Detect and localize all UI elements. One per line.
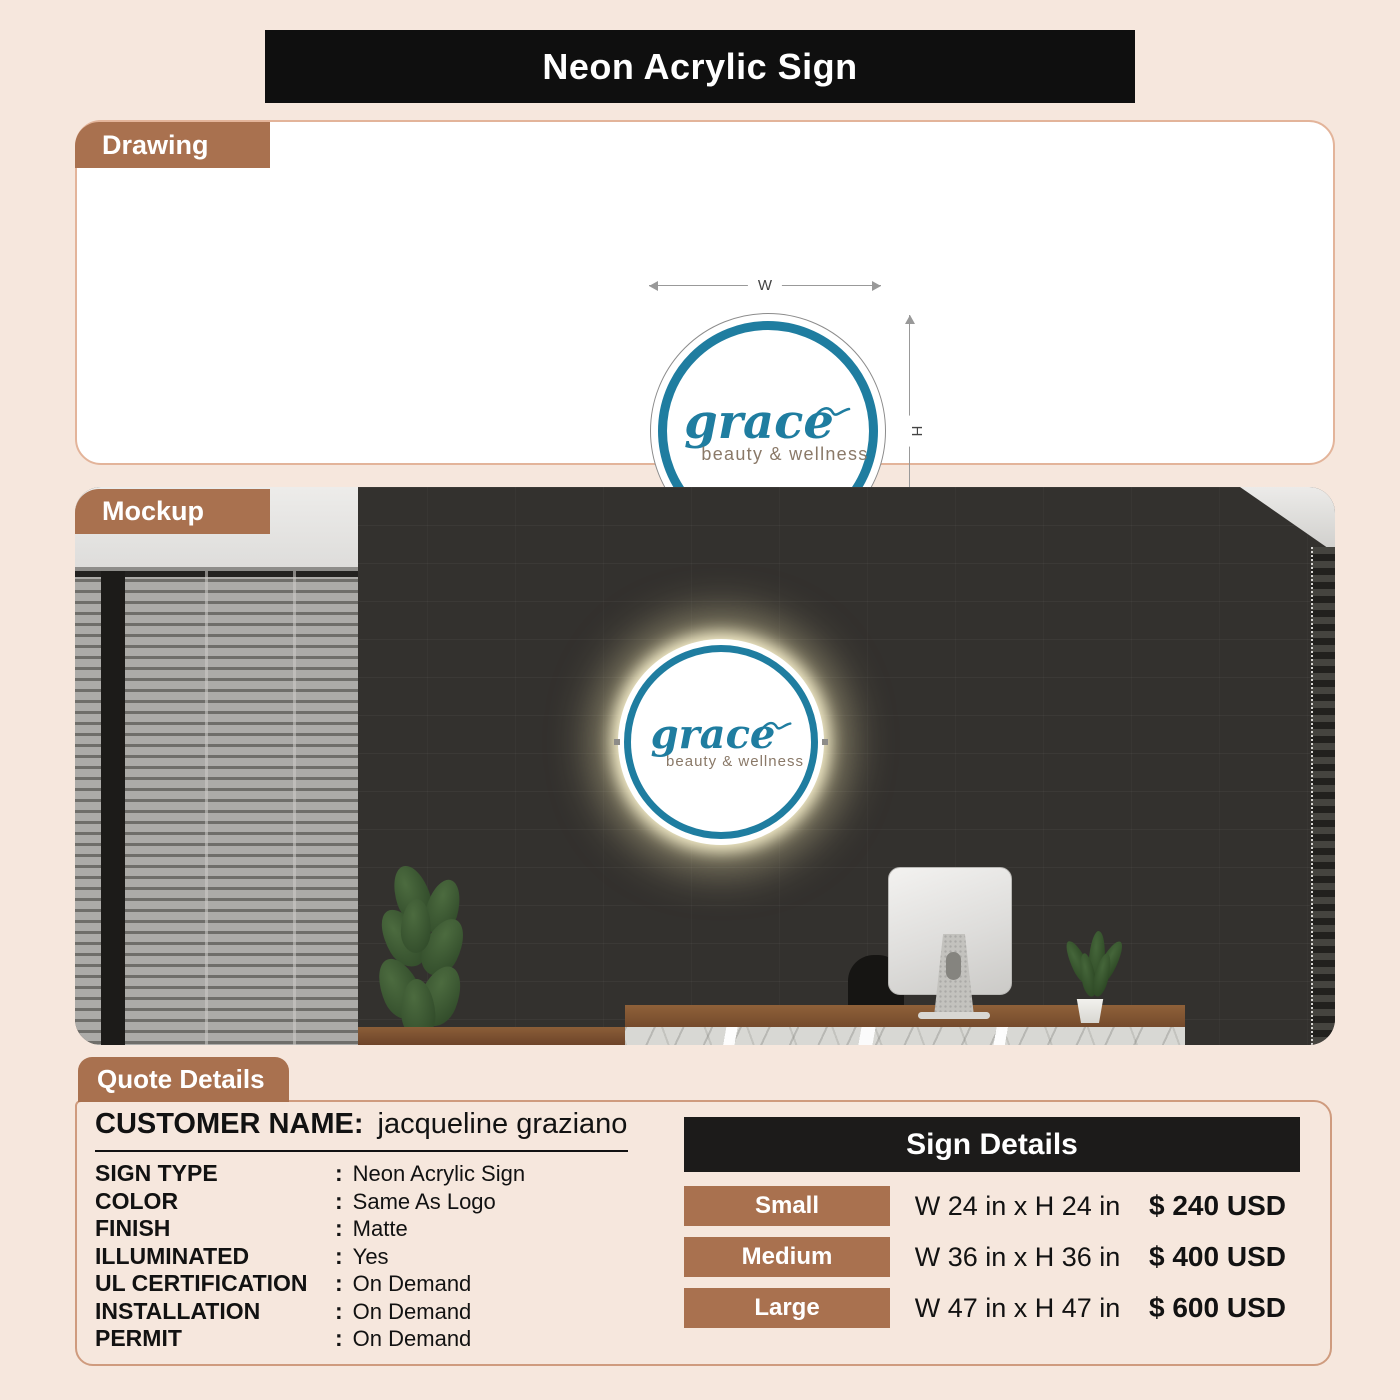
medium-price: $ 400 USD <box>1145 1241 1300 1273</box>
sign-details-rows: Small W 24 in x H 24 in $ 240 USD Medium… <box>684 1186 1300 1339</box>
field-value: Yes <box>353 1244 389 1270</box>
quote-field-row: INSTALLATION : On Demand <box>95 1298 640 1325</box>
large-size-button[interactable]: Large <box>684 1288 890 1328</box>
field-label: COLOR <box>95 1188 335 1215</box>
arrowhead-right-icon <box>872 281 881 291</box>
blind-cord <box>293 571 296 1045</box>
ceiling-corner <box>1240 487 1335 553</box>
width-dimension-label: W <box>748 277 782 294</box>
customer-name-value: jacqueline graziano <box>378 1108 628 1141</box>
quote-field-row: COLOR : Same As Logo <box>95 1188 640 1215</box>
field-separator: : <box>335 1243 343 1270</box>
large-price: $ 600 USD <box>1145 1292 1300 1324</box>
size-row-small: Small W 24 in x H 24 in $ 240 USD <box>684 1186 1300 1226</box>
arrowhead-left-icon <box>649 281 658 291</box>
customer-row: CUSTOMER NAME: jacqueline graziano <box>95 1108 627 1141</box>
tab-quote-details[interactable]: Quote Details <box>78 1057 289 1102</box>
medium-size-button[interactable]: Medium <box>684 1237 890 1277</box>
quote-fields: SIGN TYPE : Neon Acrylic Sign COLOR : Sa… <box>95 1160 640 1352</box>
sign-mount <box>822 739 828 745</box>
quote-field-row: PERMIT : On Demand <box>95 1325 640 1352</box>
customer-name-label: CUSTOMER NAME: <box>95 1108 364 1141</box>
field-separator: : <box>335 1188 343 1215</box>
logo-subtitle: beauty & wellness <box>701 444 868 465</box>
field-value: Matte <box>353 1216 408 1242</box>
size-row-large: Large W 47 in x H 47 in $ 600 USD <box>684 1288 1300 1328</box>
sign-mount <box>614 739 620 745</box>
field-separator: : <box>335 1325 343 1352</box>
quote-field-row: SIGN TYPE : Neon Acrylic Sign <box>95 1160 640 1187</box>
field-label: FINISH <box>95 1215 335 1242</box>
width-arrow-icon: W <box>649 278 881 294</box>
mockup-panel: grace beauty & wellness <box>75 487 1335 1045</box>
field-separator: : <box>335 1298 343 1325</box>
arrowhead-up-icon <box>905 315 915 324</box>
blind-cord <box>205 571 208 1045</box>
window-frame <box>101 571 125 1045</box>
quote-sheet: Neon Acrylic Sign W H grace beauty & wel… <box>0 0 1400 1400</box>
quote-field-row: UL CERTIFICATION : On Demand <box>95 1270 640 1297</box>
tab-mockup[interactable]: Mockup <box>75 489 270 534</box>
large-dimensions: W 47 in x H 47 in <box>890 1293 1145 1324</box>
swoosh-icon <box>758 717 792 737</box>
sign-subtitle: beauty & wellness <box>666 753 804 770</box>
tab-drawing[interactable]: Drawing <box>75 122 270 168</box>
quote-field-row: ILLUMINATED : Yes <box>95 1243 640 1270</box>
drawing-panel: W H grace beauty & wellness <box>75 120 1335 465</box>
customer-underline <box>95 1150 628 1152</box>
small-price: $ 240 USD <box>1145 1190 1300 1222</box>
field-separator: : <box>335 1215 343 1242</box>
medium-dimensions: W 36 in x H 36 in <box>890 1242 1145 1273</box>
field-label: UL CERTIFICATION <box>95 1270 335 1297</box>
desk-marble-front <box>625 1027 1185 1045</box>
quote-field-row: FINISH : Matte <box>95 1215 640 1242</box>
height-dimension-label: H <box>908 416 925 447</box>
field-label: ILLUMINATED <box>95 1243 335 1270</box>
field-value: Same As Logo <box>353 1189 496 1215</box>
small-dimensions: W 24 in x H 24 in <box>890 1191 1145 1222</box>
monitor-base <box>918 1012 990 1019</box>
size-row-medium: Medium W 36 in x H 36 in $ 400 USD <box>684 1237 1300 1277</box>
page-title: Neon Acrylic Sign <box>265 30 1135 103</box>
side-blind-strip <box>1311 547 1335 1045</box>
field-value: On Demand <box>353 1299 472 1325</box>
field-separator: : <box>335 1160 343 1187</box>
mockup-sign: grace beauty & wellness <box>618 639 824 845</box>
field-separator: : <box>335 1270 343 1297</box>
field-label: INSTALLATION <box>95 1298 335 1325</box>
field-label: SIGN TYPE <box>95 1160 335 1187</box>
sign-details-header: Sign Details <box>684 1117 1300 1172</box>
field-value: On Demand <box>353 1271 472 1297</box>
monitor-stand-hole <box>946 952 961 980</box>
field-value: On Demand <box>353 1326 472 1352</box>
field-label: PERMIT <box>95 1325 335 1352</box>
small-size-button[interactable]: Small <box>684 1186 890 1226</box>
sign-content: grace beauty & wellness <box>618 639 824 845</box>
sign-wordmark: grace <box>651 715 776 755</box>
field-value: Neon Acrylic Sign <box>353 1161 525 1187</box>
swoosh-icon <box>811 402 851 424</box>
